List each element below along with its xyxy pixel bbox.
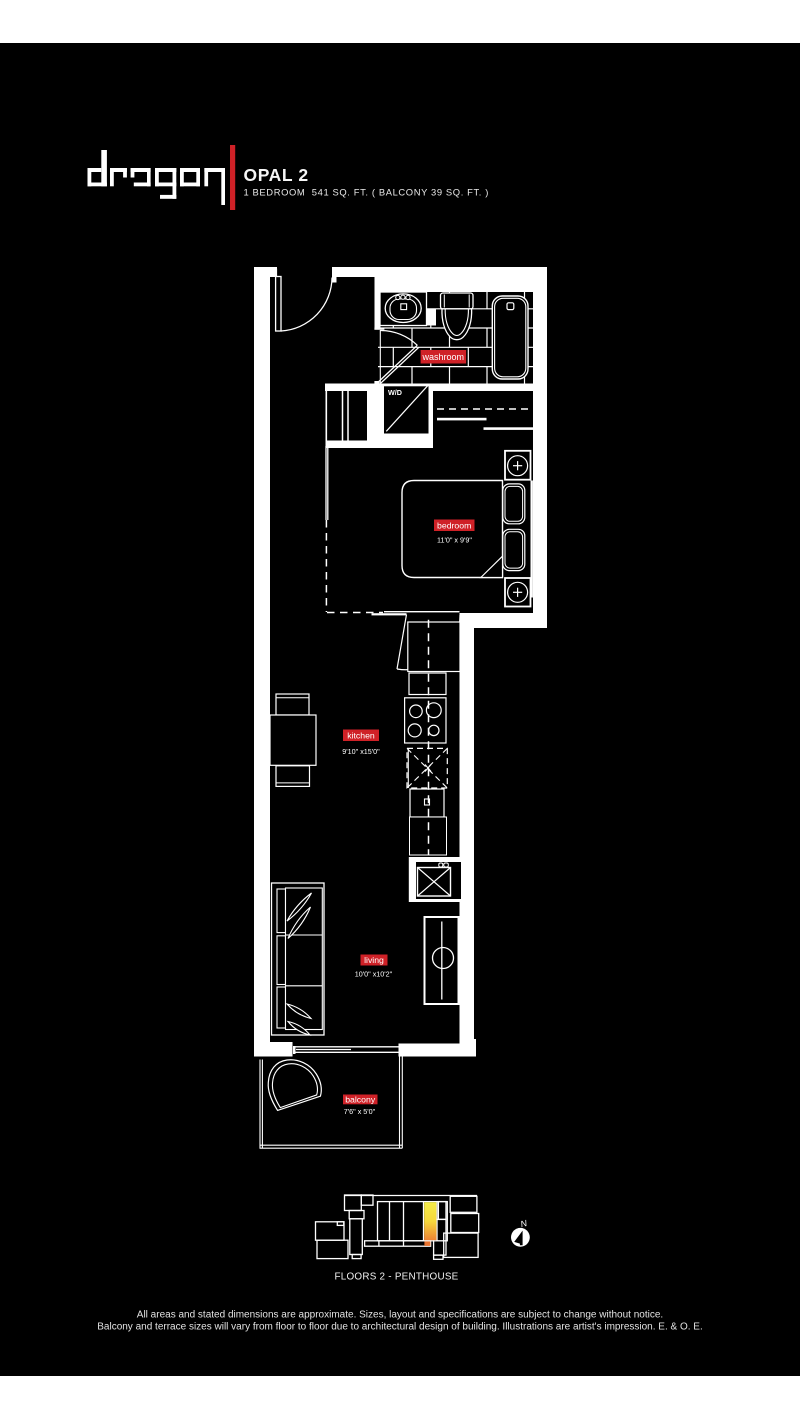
svg-text:kitchen: kitchen: [347, 730, 375, 740]
svg-text:7'6" x 5'0": 7'6" x 5'0": [344, 1107, 376, 1116]
svg-text:balcony: balcony: [345, 1094, 376, 1104]
svg-text:10'0" x10'2": 10'0" x10'2": [355, 970, 393, 979]
svg-text:bedroom: bedroom: [437, 520, 471, 530]
svg-text:All areas and stated dimension: All areas and stated dimensions are appr…: [137, 1310, 663, 1321]
svg-text:washroom: washroom: [422, 352, 465, 362]
svg-text:FLOORS 2 - PENTHOUSE: FLOORS 2 - PENTHOUSE: [334, 1272, 458, 1283]
svg-text:Balcony and terrace sizes will: Balcony and terrace sizes will vary from…: [97, 1322, 703, 1333]
svg-text:OPAL 2: OPAL 2: [244, 165, 309, 185]
svg-text:9'10" x15'0": 9'10" x15'0": [342, 747, 380, 756]
svg-text:1 BEDROOM 541 SQ. FT. ( BALCO: 1 BEDROOM 541 SQ. FT. ( BALCONY 39 SQ. F…: [244, 187, 490, 198]
svg-text:W/D: W/D: [388, 388, 402, 397]
svg-text:11'0" x 9'9": 11'0" x 9'9": [437, 536, 472, 545]
svg-text:living: living: [364, 955, 384, 965]
